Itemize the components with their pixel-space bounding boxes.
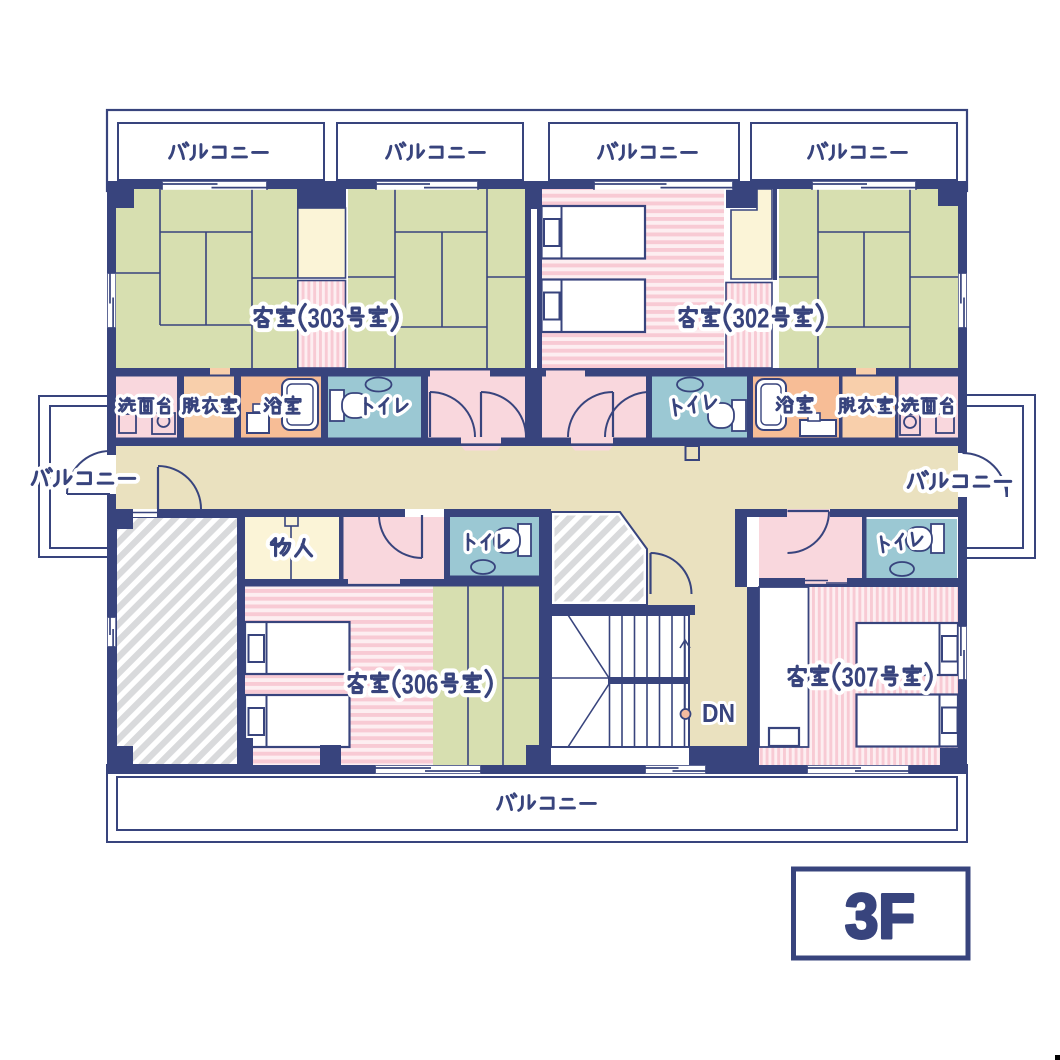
svg-text:307: 307 (842, 662, 879, 693)
svg-text:303: 303 (308, 303, 345, 334)
svg-text:3F: 3F (845, 882, 915, 952)
svg-text:302: 302 (733, 303, 770, 334)
svg-text:306: 306 (402, 669, 439, 700)
svg-text:DN: DN (702, 698, 735, 728)
